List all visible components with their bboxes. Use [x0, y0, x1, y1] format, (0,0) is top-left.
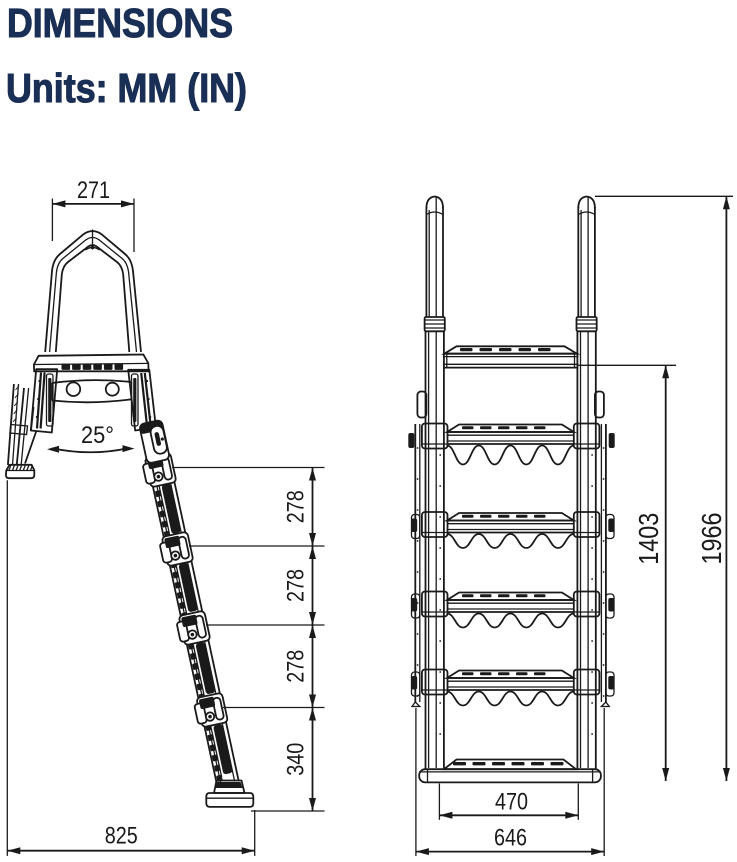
svg-text:271: 271 [77, 177, 110, 204]
svg-text:646: 646 [494, 825, 527, 852]
svg-text:1403: 1403 [633, 513, 664, 565]
svg-text:825: 825 [105, 823, 138, 850]
svg-text:DIMENSIONS: DIMENSIONS [7, 0, 233, 46]
svg-text:Units: MM (IN): Units: MM (IN) [6, 65, 247, 111]
svg-text:470: 470 [495, 789, 528, 816]
svg-text:278: 278 [283, 490, 310, 523]
svg-text:1966: 1966 [696, 513, 727, 565]
svg-text:25°: 25° [81, 422, 114, 449]
svg-text:278: 278 [283, 569, 310, 602]
svg-text:340: 340 [283, 743, 310, 776]
svg-text:278: 278 [283, 650, 310, 683]
